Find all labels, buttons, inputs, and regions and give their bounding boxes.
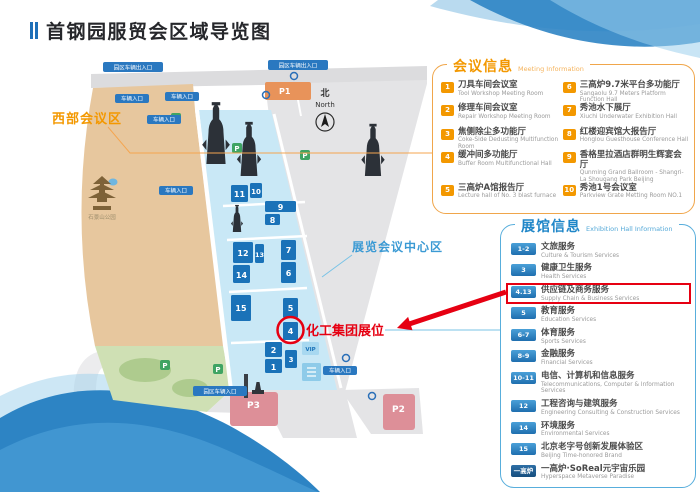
meeting-panel-header: 会议信息 Meeting Information — [447, 56, 590, 76]
exhibition-hall-text: 一高炉·SoReal元宇宙乐园 Hyperspace Metaverse Par… — [541, 465, 645, 481]
exhibition-hall-item: 1-2 文旅服务 Culture & Tourism Services — [511, 243, 689, 259]
exhibition-hall-name-zh: 一高炉·SoReal元宇宙乐园 — [541, 465, 645, 475]
meeting-room-text: 缓冲间多功能厅 Buffer Room Multifunctional Hall — [458, 151, 552, 167]
exhibition-hall-text: 环境服务 Environmental Services — [541, 422, 609, 438]
exhibition-hall-name-en: Hyperspace Metaverse Paradise — [541, 474, 645, 481]
svg-text:1: 1 — [271, 363, 277, 372]
exhibition-hall-text: 健康卫生服务 Health Services — [541, 264, 592, 280]
meeting-room-name-en: Buffer Room Multifunctional Hall — [458, 161, 552, 168]
exhibition-hall-name-en: Education Services — [541, 317, 596, 324]
exhibition-hall-item: 12 工程咨询与建筑服务 Engineering Consulting & Co… — [511, 400, 689, 416]
title-bar-icon — [35, 22, 38, 39]
meeting-room-name-en: Honglou Guesthouse Conference Hall — [580, 137, 688, 144]
exhibition-hall-number-badge: 1-2 — [511, 243, 536, 255]
meeting-room-item: 4 缓冲间多功能厅 Buffer Room Multifunctional Ha… — [441, 151, 559, 184]
svg-text:VIP: VIP — [305, 347, 315, 353]
meeting-room-item: 9 香格里拉酒店群明生辉宴会厅 Qunming Grand Ballroom -… — [563, 151, 690, 184]
svg-text:15: 15 — [235, 304, 247, 313]
meeting-room-name-zh: 缓冲间多功能厅 — [458, 151, 552, 161]
meeting-room-text: 秀池1号会议室 Parkview Grate Metting Room NO.1 — [580, 184, 682, 200]
header: 首钢园服贸会区域导览图 — [30, 17, 272, 44]
park-name-label: 石景山公园 — [88, 213, 116, 221]
svg-text:P: P — [234, 145, 239, 153]
svg-text:North: North — [315, 101, 335, 109]
exhibition-hall-name-en: Environmental Services — [541, 431, 609, 438]
exhibition-hall-number-badge: 3 — [511, 264, 536, 276]
meeting-room-name-en: Qunming Grand Ballroom - Shangri-La Shou… — [580, 170, 690, 183]
meeting-room-number-badge: 7 — [563, 105, 576, 116]
exhibition-panel-header: 展馆信息 Exhibition Hall Information — [515, 216, 679, 236]
svg-text:车辆入口: 车辆入口 — [165, 187, 187, 195]
exhibition-panel-title: 展馆信息 — [521, 216, 581, 236]
exhibition-hall-name-zh: 供应链及商务服务 — [541, 286, 639, 296]
svg-text:车辆入口: 车辆入口 — [171, 93, 193, 101]
exhibition-hall-name-en: Beijing Time-honored Brand — [541, 453, 643, 460]
meeting-panel-title: 会议信息 — [453, 56, 513, 76]
pond — [109, 179, 118, 186]
meeting-room-text: 刀具车间会议室 Tool Workshop Meeting Room — [458, 81, 543, 97]
meeting-room-name-en: Xiuchi Underwater Exhibition Hall — [580, 114, 677, 121]
svg-text:P: P — [215, 366, 220, 374]
p2-parking: P2 — [383, 394, 415, 430]
exhibition-hall-number-badge: 6-7 — [511, 329, 536, 341]
exhibition-hall-item: 3 健康卫生服务 Health Services — [511, 264, 689, 280]
meeting-panel-subtitle: Meeting Information — [518, 65, 584, 73]
exhibition-hall-name-en: Financial Services — [541, 360, 593, 367]
svg-text:11: 11 — [234, 190, 246, 199]
meeting-room-number-badge: 5 — [441, 185, 454, 196]
exhibition-hall-name-zh: 体育服务 — [541, 329, 586, 339]
meeting-room-text: 焦侧除尘多功能厅 Coke-Side Dedusting Multifuncti… — [458, 128, 559, 151]
exhibition-hall-text: 教育服务 Education Services — [541, 307, 596, 323]
exhibition-hall-name-zh: 工程咨询与建筑服务 — [541, 400, 680, 410]
svg-text:园区车辆出入口: 园区车辆出入口 — [114, 64, 153, 72]
meeting-room-text: 三高炉9.7米平台多功能厅 Sangaolu 9.7 Meters Platfo… — [580, 81, 690, 104]
svg-text:P: P — [302, 152, 307, 160]
svg-text:13: 13 — [255, 251, 264, 259]
exhibition-hall-name-en: Health Services — [541, 274, 592, 281]
p1-parking: P1 — [265, 82, 311, 100]
svg-text:2: 2 — [271, 346, 277, 355]
west-conference-area-label: 西部会议区 — [52, 108, 122, 127]
exhibition-hall-name-en: Supply Chain & Business Services — [541, 296, 639, 303]
svg-text:P: P — [162, 362, 167, 370]
meeting-room-item: 6 三高炉9.7米平台多功能厅 Sangaolu 9.7 Meters Plat… — [563, 81, 690, 104]
exhibition-hall-item: 15 北京老字号创新发展体验区 Beijing Time-honored Bra… — [511, 443, 689, 459]
exhibition-hall-text: 金融服务 Financial Services — [541, 350, 593, 366]
meeting-room-list: 1 刀具车间会议室 Tool Workshop Meeting Room 2 修… — [441, 81, 690, 207]
meeting-room-name-zh: 修理车间会议室 — [458, 104, 551, 114]
meeting-room-name-en: Tool Workshop Meeting Room — [458, 91, 543, 98]
meeting-info-panel: 会议信息 Meeting Information 1 刀具车间会议室 Tool … — [432, 64, 695, 214]
meeting-room-number-badge: 3 — [441, 129, 454, 140]
meeting-room-name-zh: 三高炉A馆报告厅 — [458, 184, 556, 194]
page: { "title": "首钢园服贸会区域导览图", "watermark": "… — [0, 0, 700, 492]
vip-building: VIP — [302, 342, 319, 355]
exhibition-hall-number-badge: 4.13 — [511, 286, 536, 298]
svg-text:8: 8 — [270, 216, 276, 225]
exhibition-hall-text: 供应链及商务服务 Supply Chain & Business Service… — [541, 286, 639, 302]
exhibition-hall-item: 10-11 电信、计算机和信息服务 Telecommunications, Co… — [511, 372, 689, 395]
meeting-room-item: 5 三高炉A馆报告厅 Lecture hall of No. 3 blast f… — [441, 184, 559, 207]
exhibition-hall-number-badge: 5 — [511, 307, 536, 319]
svg-text:车辆入口: 车辆入口 — [153, 116, 175, 124]
title-bar-icon — [30, 22, 33, 39]
meeting-room-item: 8 红楼迎宾馆大报告厅 Honglou Guesthouse Conferenc… — [563, 128, 690, 151]
meeting-room-text: 修理车间会议室 Repair Workshop Meeting Room — [458, 104, 551, 120]
meeting-room-item: 10 秀池1号会议室 Parkview Grate Metting Room N… — [563, 184, 690, 207]
exhibition-hall-text: 电信、计算机和信息服务 Telecommunications, Computer… — [541, 372, 689, 395]
svg-text:5: 5 — [288, 304, 294, 313]
meeting-room-number-badge: 1 — [441, 82, 454, 93]
exhibition-hall-item: 14 环境服务 Environmental Services — [511, 422, 689, 438]
south-gray-area — [207, 390, 357, 438]
exhibition-hall-number-badge: 14 — [511, 422, 536, 434]
exhibition-hall-number-badge: 8-9 — [511, 350, 536, 362]
meeting-room-item: 3 焦侧除尘多功能厅 Coke-Side Dedusting Multifunc… — [441, 128, 559, 151]
exhibition-hall-number-badge: 15 — [511, 443, 536, 455]
meeting-room-name-en: Lecture hall of No. 3 blast furnace — [458, 193, 556, 200]
exhibition-hall-text: 北京老字号创新发展体验区 Beijing Time-honored Brand — [541, 443, 643, 459]
exhibition-hall-name-en: Sports Services — [541, 339, 586, 346]
exhibition-hall-number-badge: 12 — [511, 400, 536, 412]
svg-text:车辆入口: 车辆入口 — [121, 95, 143, 103]
svg-text:车辆入口: 车辆入口 — [329, 367, 351, 375]
svg-text:6: 6 — [286, 269, 292, 278]
meeting-room-item: 7 秀池水下展厅 Xiuchi Underwater Exhibition Ha… — [563, 104, 690, 127]
svg-text:P1: P1 — [279, 87, 291, 96]
exhibition-hall-item: 4.13 供应链及商务服务 Supply Chain & Business Se… — [511, 286, 689, 302]
svg-text:P2: P2 — [392, 405, 405, 415]
meeting-room-number-badge: 9 — [563, 152, 576, 163]
exhibition-hall-name-zh: 文旅服务 — [541, 243, 619, 253]
p3-parking: P3 — [230, 392, 278, 426]
svg-text:园区车辆入口: 园区车辆入口 — [203, 388, 236, 396]
meeting-room-number-badge: 6 — [563, 82, 576, 93]
meeting-room-name-zh: 三高炉9.7米平台多功能厅 — [580, 81, 690, 91]
exhibition-hall-item: 8-9 金融服务 Financial Services — [511, 350, 689, 366]
exhibition-hall-number-badge: 10-11 — [511, 372, 536, 384]
exhibition-hall-name-zh: 金融服务 — [541, 350, 593, 360]
exhibition-panel-subtitle: Exhibition Hall Information — [586, 225, 673, 233]
booth-label: 化工集团展位 — [306, 323, 384, 339]
exhibition-hall-name-zh: 健康卫生服务 — [541, 264, 592, 274]
meeting-room-text: 三高炉A馆报告厅 Lecture hall of No. 3 blast fur… — [458, 184, 556, 200]
meeting-room-item: 1 刀具车间会议室 Tool Workshop Meeting Room — [441, 81, 559, 104]
meeting-room-text: 秀池水下展厅 Xiuchi Underwater Exhibition Hall — [580, 104, 677, 120]
exhibition-hall-text: 工程咨询与建筑服务 Engineering Consulting & Const… — [541, 400, 680, 416]
exhibition-hall-item: 5 教育服务 Education Services — [511, 307, 689, 323]
meeting-room-number-badge: 2 — [441, 105, 454, 116]
svg-text:14: 14 — [236, 271, 248, 280]
exhibition-hall-name-en: Telecommunications, Computer & Informati… — [541, 382, 689, 395]
exhibition-hall-name-en: Culture & Tourism Services — [541, 253, 619, 260]
exhibition-hall-item: 6-7 体育服务 Sports Services — [511, 329, 689, 345]
meeting-room-name-en: Parkview Grate Metting Room NO.1 — [580, 193, 682, 200]
svg-text:4: 4 — [288, 327, 294, 336]
svg-text:P3: P3 — [247, 401, 260, 411]
svg-text:北: 北 — [320, 87, 329, 99]
meeting-room-name-zh: 秀池水下展厅 — [580, 104, 677, 114]
meeting-room-name-en: Coke-Side Dedusting Multifunction Room — [458, 137, 559, 150]
exhibition-info-panel: 展馆信息 Exhibition Hall Information 1-2 文旅服… — [500, 224, 696, 488]
svg-text:3: 3 — [289, 356, 294, 364]
exhibition-hall-name-zh: 环境服务 — [541, 422, 609, 432]
exhibition-hall-text: 体育服务 Sports Services — [541, 329, 586, 345]
meeting-room-name-en: Repair Workshop Meeting Room — [458, 114, 551, 121]
meeting-room-name-zh: 焦侧除尘多功能厅 — [458, 128, 559, 138]
meeting-room-number-badge: 8 — [563, 129, 576, 140]
exhibition-center-area-label: 展览会议中心区 — [352, 238, 443, 255]
south-green-area — [95, 346, 231, 412]
svg-text:7: 7 — [286, 246, 292, 255]
exhibition-hall-name-zh: 电信、计算机和信息服务 — [541, 372, 689, 382]
exhibition-hall-name-zh: 北京老字号创新发展体验区 — [541, 443, 643, 453]
meeting-room-name-zh: 香格里拉酒店群明生辉宴会厅 — [580, 151, 690, 171]
meeting-room-text: 红楼迎宾馆大报告厅 Honglou Guesthouse Conference … — [580, 128, 688, 144]
exhibition-hall-name-zh: 教育服务 — [541, 307, 596, 317]
meeting-room-number-badge: 10 — [563, 185, 576, 196]
page-title: 首钢园服贸会区域导览图 — [46, 17, 272, 44]
exhibition-hall-item: 一高炉 一高炉·SoReal元宇宙乐园 Hyperspace Metaverse… — [511, 465, 689, 481]
meeting-room-text: 香格里拉酒店群明生辉宴会厅 Qunming Grand Ballroom - S… — [580, 151, 690, 184]
exhibition-hall-name-en: Engineering Consulting & Construction Se… — [541, 410, 680, 417]
svg-text:12: 12 — [237, 249, 248, 258]
svg-text:9: 9 — [278, 203, 284, 212]
meeting-room-number-badge: 4 — [441, 152, 454, 163]
svg-text:10: 10 — [251, 188, 261, 196]
svg-text:园区车辆出入口: 园区车辆出入口 — [279, 62, 318, 70]
meeting-room-name-zh: 刀具车间会议室 — [458, 81, 543, 91]
meeting-room-item: 2 修理车间会议室 Repair Workshop Meeting Room — [441, 104, 559, 127]
exhibition-hall-number-badge: 一高炉 — [511, 465, 536, 477]
exhibition-hall-list: 1-2 文旅服务 Culture & Tourism Services 3 健康… — [511, 243, 689, 481]
meeting-room-name-zh: 秀池1号会议室 — [580, 184, 682, 194]
meeting-room-name-zh: 红楼迎宾馆大报告厅 — [580, 128, 688, 138]
exhibition-hall-text: 文旅服务 Culture & Tourism Services — [541, 243, 619, 259]
